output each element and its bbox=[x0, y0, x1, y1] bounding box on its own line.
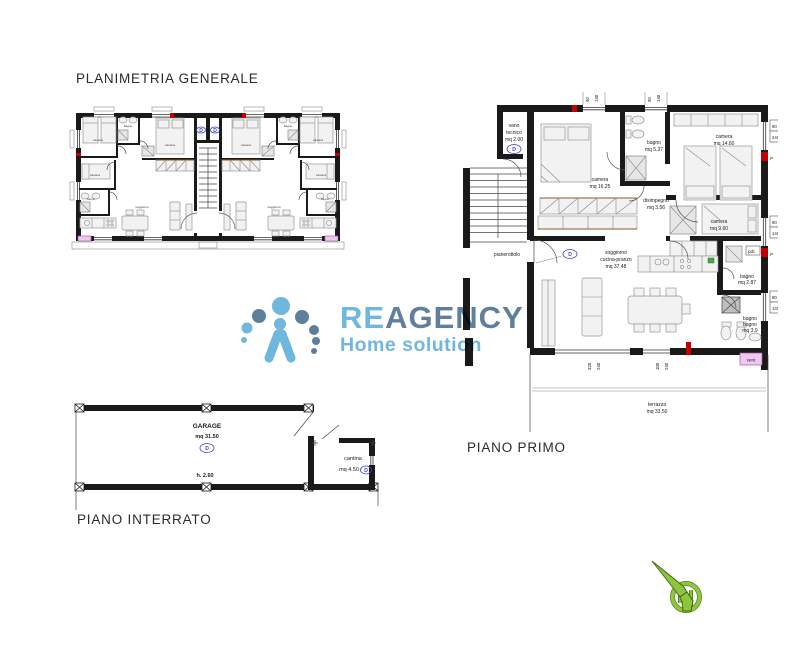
svg-text:GARAGE: GARAGE bbox=[193, 423, 222, 430]
first-floor-title: PIANO PRIMO bbox=[467, 440, 566, 455]
brand-name: REAGENCY bbox=[340, 302, 524, 333]
floorplan-page: PLANIMETRIA GENERALE PIANO PRIMO PIANO I… bbox=[0, 0, 800, 645]
svg-text:140: 140 bbox=[594, 94, 599, 102]
first-floor-plan: 90 140 90 140 90 240 P 90 140 P 80 bbox=[458, 66, 778, 432]
svg-text:90: 90 bbox=[772, 124, 777, 129]
svg-text:mq 16.25: mq 16.25 bbox=[590, 184, 611, 190]
svg-text:bagno: bagno bbox=[321, 197, 330, 201]
svg-text:h. 2.60: h. 2.60 bbox=[196, 473, 213, 479]
svg-text:soggiorno: soggiorno bbox=[267, 205, 281, 209]
svg-text:disimpegno: disimpegno bbox=[643, 198, 669, 204]
svg-text:240: 240 bbox=[772, 135, 778, 140]
svg-text:mq 4.50: mq 4.50 bbox=[339, 467, 359, 473]
svg-text:camera: camera bbox=[90, 173, 100, 177]
svg-text:mq 5.37: mq 5.37 bbox=[645, 147, 663, 153]
pi-labels: GARAGE mq 31.50 D h. 2.60 cantina mq 4.5… bbox=[193, 423, 372, 479]
svg-text:320: 320 bbox=[587, 362, 592, 370]
svg-text:mq 2.87: mq 2.87 bbox=[738, 280, 756, 286]
agency-logo-icon bbox=[240, 294, 324, 366]
svg-text:100: 100 bbox=[655, 362, 660, 370]
pp-bottom-windows: 320 240 100 240 bbox=[555, 342, 691, 370]
svg-text:pianerottolo: pianerottolo bbox=[494, 252, 520, 258]
svg-text:140: 140 bbox=[772, 306, 778, 311]
svg-text:80: 80 bbox=[772, 295, 777, 300]
svg-text:90: 90 bbox=[585, 97, 590, 102]
basement-plan: GARAGE mq 31.50 D h. 2.60 cantina mq 4.5… bbox=[56, 396, 391, 521]
svg-text:camera: camera bbox=[316, 173, 326, 177]
svg-text:terrazza: terrazza bbox=[648, 402, 666, 408]
svg-text:mq 3.9: mq 3.9 bbox=[742, 328, 758, 334]
svg-text:D: D bbox=[364, 468, 368, 474]
svg-text:mq 3.56: mq 3.56 bbox=[647, 205, 665, 211]
svg-text:240: 240 bbox=[664, 362, 669, 370]
svg-text:140: 140 bbox=[656, 94, 661, 102]
agency-logo: REAGENCY Home solution bbox=[240, 294, 524, 366]
svg-text:bagno: bagno bbox=[284, 124, 293, 128]
svg-text:D: D bbox=[213, 128, 217, 134]
svg-text:bagno: bagno bbox=[647, 140, 661, 146]
svg-text:soggiorno: soggiorno bbox=[605, 250, 627, 256]
svg-text:camera: camera bbox=[716, 134, 733, 140]
general-floorplan: camera bagno camera camera bagno soggior… bbox=[58, 96, 358, 258]
pi-walls bbox=[75, 404, 378, 510]
svg-text:mq 33.50: mq 33.50 bbox=[647, 409, 668, 415]
svg-text:D: D bbox=[512, 147, 516, 153]
pp-vent: vent bbox=[740, 353, 762, 365]
svg-text:camera: camera bbox=[711, 219, 728, 225]
svg-text:mq 31.50: mq 31.50 bbox=[195, 434, 219, 440]
general-staircase bbox=[199, 148, 217, 248]
pp-terrace bbox=[530, 355, 768, 432]
svg-text:bagno: bagno bbox=[87, 197, 96, 201]
svg-text:D: D bbox=[568, 252, 572, 258]
svg-text:camera: camera bbox=[592, 177, 609, 183]
svg-text:bagno: bagno bbox=[124, 124, 133, 128]
svg-text:mq 9.60: mq 9.60 bbox=[710, 226, 728, 232]
svg-text:camera: camera bbox=[241, 143, 251, 147]
svg-text:soggiorno: soggiorno bbox=[135, 205, 149, 209]
svg-text:140: 140 bbox=[772, 231, 778, 236]
svg-text:cucina-pranzo: cucina-pranzo bbox=[600, 257, 632, 263]
svg-text:D: D bbox=[199, 128, 203, 134]
svg-text:P: P bbox=[770, 156, 773, 161]
svg-text:mq 14.60: mq 14.60 bbox=[714, 141, 735, 147]
svg-text:camera: camera bbox=[165, 143, 175, 147]
svg-text:vano: vano bbox=[509, 123, 520, 129]
svg-text:vent: vent bbox=[747, 358, 756, 363]
svg-text:camera: camera bbox=[93, 138, 103, 142]
svg-text:mq 37.48: mq 37.48 bbox=[606, 264, 627, 270]
svg-text:mq 2.00: mq 2.00 bbox=[505, 137, 523, 143]
svg-text:D: D bbox=[205, 446, 209, 452]
svg-text:90: 90 bbox=[647, 97, 652, 102]
svg-text:pdc: pdc bbox=[748, 249, 756, 254]
svg-text:camera: camera bbox=[313, 138, 323, 142]
svg-text:P: P bbox=[770, 252, 773, 257]
svg-text:240: 240 bbox=[596, 362, 601, 370]
general-plan-title: PLANIMETRIA GENERALE bbox=[76, 71, 259, 86]
brand-tagline: Home solution bbox=[340, 336, 524, 356]
svg-text:cantina: cantina bbox=[344, 456, 363, 462]
pp-staircase bbox=[470, 174, 527, 238]
svg-text:90: 90 bbox=[772, 220, 777, 225]
green-pointer-icon bbox=[650, 560, 706, 614]
svg-text:tecnico: tecnico bbox=[506, 130, 522, 136]
